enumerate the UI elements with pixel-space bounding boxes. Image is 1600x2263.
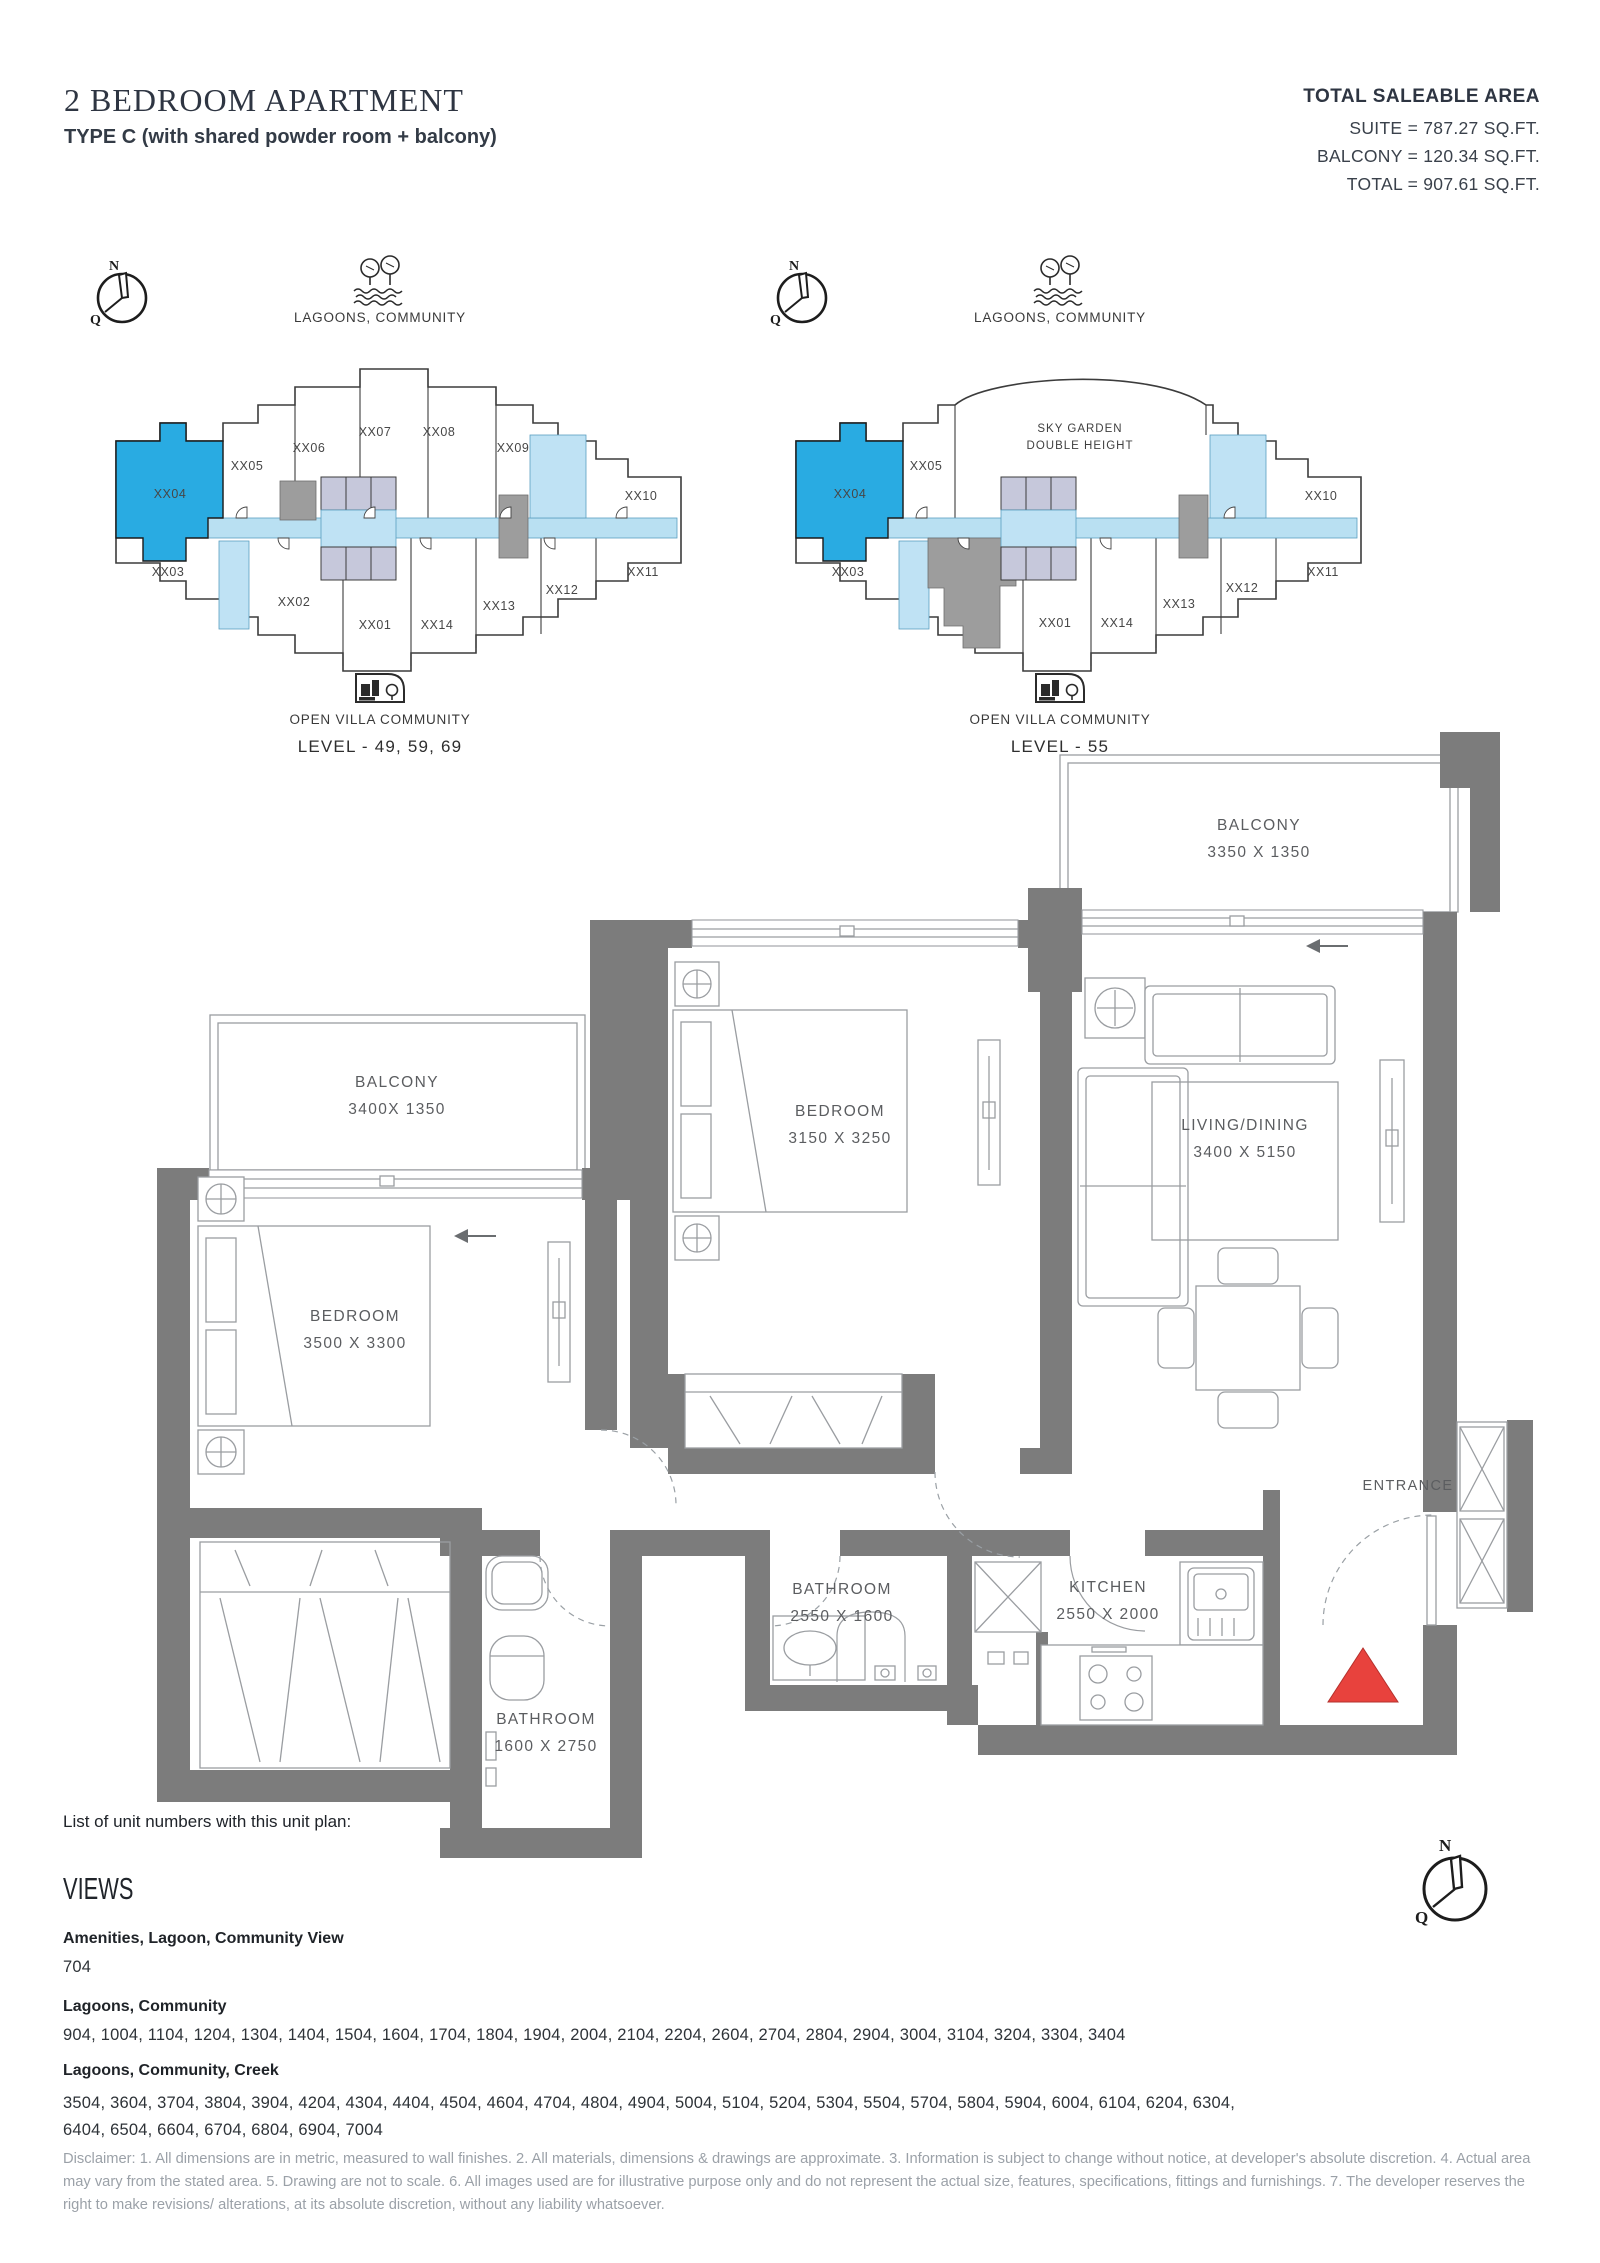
unit-label: XX01 bbox=[359, 618, 392, 632]
saleable-area-summary: TOTAL SALEABLE AREA SUITE = 787.27 SQ.FT… bbox=[1303, 86, 1540, 198]
unit-label: XX11 bbox=[627, 565, 659, 579]
balcony-left-outline bbox=[210, 1015, 585, 1170]
view-group-heading: Lagoons, Community bbox=[63, 1998, 227, 2016]
entrance-marker-triangle bbox=[1328, 1648, 1398, 1702]
room-label-kitchen: KITCHEN bbox=[1069, 1579, 1147, 1596]
key-plan-top-label: LAGOONS, COMMUNITY bbox=[740, 310, 1380, 325]
area-suite: SUITE = 787.27 SQ.FT. bbox=[1303, 114, 1540, 142]
entrance-door-leaf bbox=[1427, 1516, 1436, 1625]
unit-label: XX01 bbox=[1039, 616, 1072, 630]
dining-table bbox=[1196, 1286, 1300, 1390]
area-heading: TOTAL SALEABLE AREA bbox=[1303, 86, 1540, 108]
apartment-floor-plan: BALCONY 3350 X 1350 BALCONY 3400X 1350 B… bbox=[140, 730, 1560, 1870]
key-plan-bottom-label: OPEN VILLA COMMUNITY bbox=[60, 712, 700, 727]
entrance-label: ENTRANCE bbox=[1363, 1478, 1454, 1494]
page-title: 2 BEDROOM APARTMENT bbox=[64, 82, 464, 119]
area-total: TOTAL = 907.61 SQ.FT. bbox=[1303, 170, 1540, 198]
unit-label: XX04 bbox=[154, 487, 187, 501]
key-plan-building-2: SKY GARDEN DOUBLE HEIGHT XX04 XX05 XX10 … bbox=[748, 348, 1368, 678]
unit-label: XX12 bbox=[546, 583, 579, 597]
room-dims-balcony-left: 3400X 1350 bbox=[348, 1101, 446, 1118]
room-dims-ensuite-bathroom: 1600 X 2750 bbox=[494, 1738, 597, 1755]
page-subtitle: TYPE C (with shared powder room + balcon… bbox=[64, 126, 497, 149]
unit-label: XX13 bbox=[483, 599, 516, 613]
views-heading: VIEWS bbox=[63, 1872, 133, 1907]
disclaimer-text: Disclaimer: 1. All dimensions are in met… bbox=[63, 2148, 1540, 2216]
room-dims-bedroom-center: 3150 X 3250 bbox=[788, 1130, 891, 1147]
room-dims-living-dining: 3400 X 5150 bbox=[1193, 1144, 1296, 1161]
living-dining-furniture bbox=[1078, 978, 1404, 1428]
unit-label: XX03 bbox=[152, 565, 185, 579]
floorplan-page: 2 BEDROOM APARTMENT TYPE C (with shared … bbox=[0, 0, 1600, 2263]
view-group-units: 3504, 3604, 3704, 3804, 3904, 4204, 4304… bbox=[63, 2090, 1253, 2144]
key-plan-level-55: N Q LAGOONS, COMMUNITY bbox=[740, 250, 1380, 785]
unit-label: XX11 bbox=[1307, 565, 1339, 579]
bedroom-center-furniture bbox=[673, 962, 1000, 1448]
room-dims-kitchen: 2550 X 2000 bbox=[1056, 1606, 1159, 1623]
wardrobe-closet bbox=[200, 1542, 450, 1768]
open-villa-icon bbox=[352, 666, 408, 708]
lagoons-trees-icon bbox=[1028, 254, 1092, 308]
compass-q-label: Q bbox=[1415, 1908, 1428, 1927]
room-label-bathroom: BATHROOM bbox=[792, 1581, 892, 1598]
unit-list-intro: List of unit numbers with this unit plan… bbox=[63, 1812, 351, 1832]
bedroom-left-furniture bbox=[198, 1177, 570, 1474]
sky-garden-label-line1: SKY GARDEN bbox=[1037, 423, 1122, 435]
unit-label: XX10 bbox=[1305, 489, 1338, 503]
room-label-balcony-right: BALCONY bbox=[1217, 817, 1301, 834]
key-plan-level-49-59-69: N Q LAGOONS, COMMUNITY bbox=[60, 250, 700, 785]
compass-icon: N Q bbox=[1395, 1835, 1505, 1945]
unit-label: XX02 bbox=[278, 595, 311, 609]
room-label-ensuite-bathroom: BATHROOM bbox=[496, 1711, 596, 1728]
room-label-bedroom-center: BEDROOM bbox=[795, 1103, 885, 1120]
open-villa-icon bbox=[1032, 666, 1088, 708]
room-dims-bedroom-left: 3500 X 3300 bbox=[303, 1335, 406, 1352]
unit-label: XX10 bbox=[625, 489, 658, 503]
unit-label: XX14 bbox=[421, 618, 454, 632]
unit-label: XX05 bbox=[231, 459, 264, 473]
room-dims-bathroom: 2550 X 1600 bbox=[790, 1608, 893, 1625]
unit-label: XX04 bbox=[834, 487, 867, 501]
unit-label: XX08 bbox=[423, 425, 456, 439]
unit-label: XX05 bbox=[910, 459, 943, 473]
compass-north-label: N bbox=[109, 259, 119, 274]
room-label-bedroom-left: BEDROOM bbox=[310, 1308, 400, 1325]
view-group-units: 904, 1004, 1104, 1204, 1304, 1404, 1504,… bbox=[63, 2026, 1543, 2045]
unit-label: XX06 bbox=[293, 441, 326, 455]
compass-north-label: N bbox=[1439, 1836, 1452, 1855]
unit-label: XX13 bbox=[1163, 597, 1196, 611]
key-plan-building-1: XX04 XX05 XX06 XX07 XX08 XX09 XX10 XX03 … bbox=[68, 348, 688, 678]
unit-label: XX03 bbox=[832, 565, 865, 579]
view-group-units: 704 bbox=[63, 1958, 91, 1977]
unit-label: XX14 bbox=[1101, 616, 1134, 630]
compass-north-label: N bbox=[789, 259, 799, 274]
room-label-living-dining: LIVING/DINING bbox=[1181, 1117, 1309, 1134]
key-plan-top-label: LAGOONS, COMMUNITY bbox=[60, 310, 700, 325]
sky-garden-label-line2: DOUBLE HEIGHT bbox=[1027, 440, 1134, 452]
lagoons-trees-icon bbox=[348, 254, 412, 308]
entrance-lobby bbox=[1457, 1422, 1507, 1608]
unit-label: XX07 bbox=[359, 425, 392, 439]
area-balcony: BALCONY = 120.34 SQ.FT. bbox=[1303, 142, 1540, 170]
room-dims-balcony-right: 3350 X 1350 bbox=[1207, 844, 1310, 861]
key-plan-bottom-label: OPEN VILLA COMMUNITY bbox=[740, 712, 1380, 727]
room-label-balcony-left: BALCONY bbox=[355, 1074, 439, 1091]
unit-label: XX09 bbox=[497, 441, 530, 455]
view-group-heading: Lagoons, Community, Creek bbox=[63, 2062, 279, 2080]
view-group-heading: Amenities, Lagoon, Community View bbox=[63, 1930, 344, 1948]
unit-label: XX12 bbox=[1226, 581, 1259, 595]
